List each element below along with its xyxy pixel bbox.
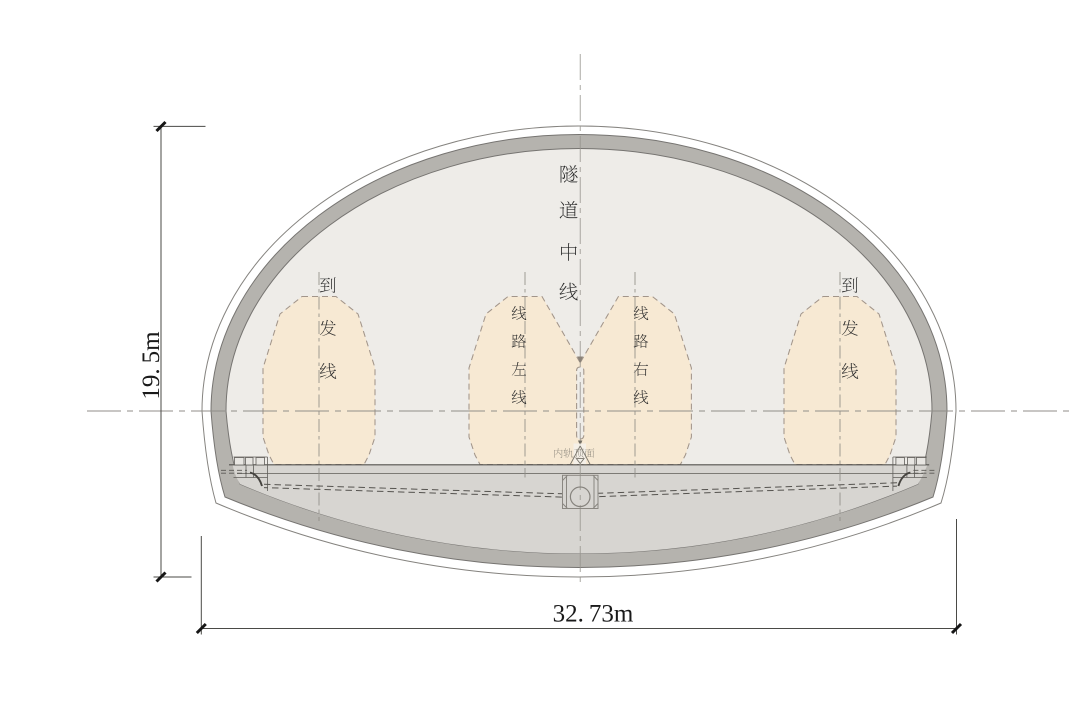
svg-text:19. 5m: 19. 5m <box>138 331 165 400</box>
svg-text:32. 73m: 32. 73m <box>553 601 634 628</box>
